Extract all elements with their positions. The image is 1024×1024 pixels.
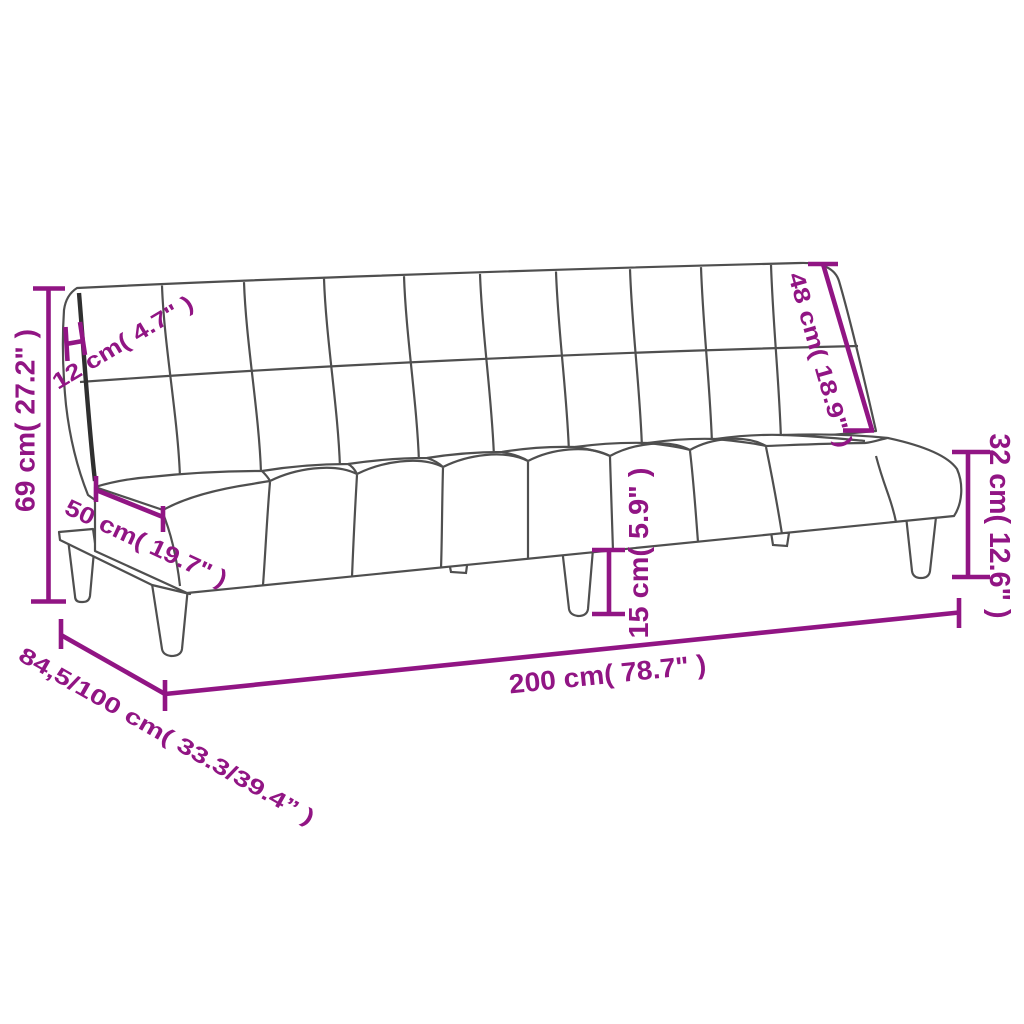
svg-text:15 cm( 5.9" ): 15 cm( 5.9" )	[623, 468, 654, 639]
svg-text:69 cm( 27.2" ): 69 cm( 27.2" )	[9, 329, 40, 512]
svg-text:84,5/100 cm( 33.3/39.4” ): 84,5/100 cm( 33.3/39.4” )	[15, 642, 319, 830]
svg-text:32 cm( 12.6" ): 32 cm( 12.6" )	[983, 434, 1015, 619]
